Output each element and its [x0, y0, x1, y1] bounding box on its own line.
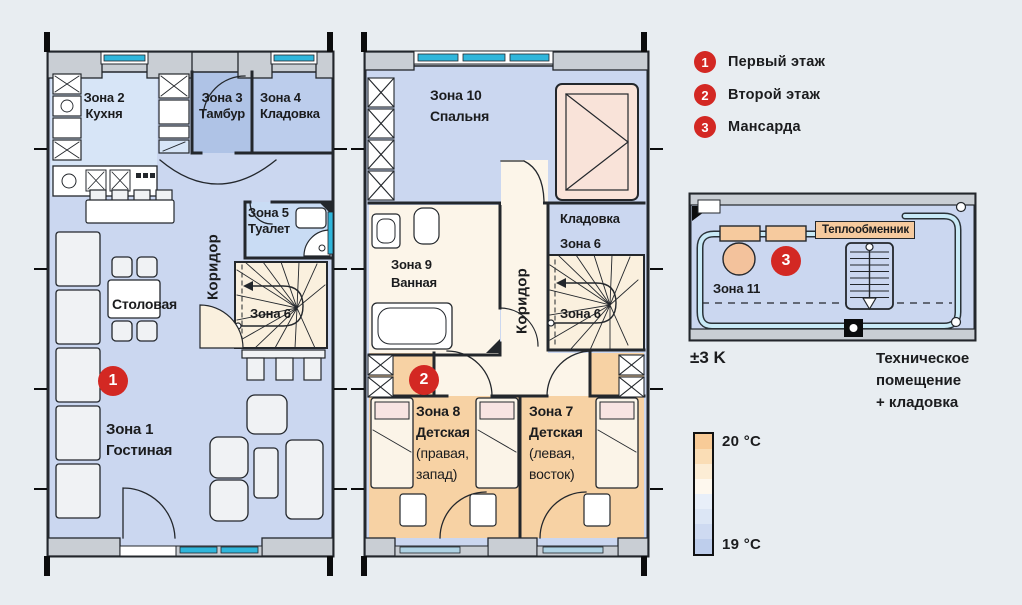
zone7-line2: Детская: [529, 422, 583, 443]
zone7-line1: Зона 7: [529, 401, 583, 422]
zone8-line2: Детская: [416, 422, 470, 443]
scale-band: [695, 494, 712, 509]
pump-dot: [850, 324, 858, 332]
temperature-scale: [693, 432, 714, 556]
scale-band: [695, 479, 712, 494]
heater-element-2: [766, 226, 806, 241]
tech-room-line1: Техническое: [876, 348, 969, 370]
zone5-line2: Туалет: [248, 221, 290, 237]
living-sofa-row: [56, 232, 100, 518]
label-zone2: Зона 2 Кухня: [69, 90, 139, 122]
zone1-line1: Зона 1: [106, 419, 172, 440]
label-storage-floor2: Кладовка Зона 6: [560, 206, 620, 256]
zone7-line3: (левая,: [529, 443, 583, 464]
label-corridor-floor2: Коридор: [514, 268, 531, 334]
zone8-line3: (правая,: [416, 443, 470, 464]
zone4-line1: Зона 4: [260, 90, 320, 106]
bedroom-bed: [556, 84, 638, 200]
label-stairs-floor1: Зона 6: [250, 306, 291, 322]
kitchen-tall-units: [159, 74, 189, 153]
label-zone11: Зона 11: [713, 281, 760, 297]
zone7-line4: восток): [529, 464, 583, 485]
zone5-line1: Зона 5: [248, 205, 290, 221]
floorplan-infographic: 1 Первый этаж 2 Второй этаж 3 Мансарда 1…: [0, 0, 1022, 605]
legend-row-1: 1 Первый этаж: [694, 51, 825, 73]
scale-min-label: 19 °C: [722, 536, 761, 553]
label-dining: Столовая: [112, 294, 177, 315]
label-zone1: Зона 1 Гостиная: [106, 419, 172, 461]
label-zone7: Зона 7 Детская (левая, восток): [529, 401, 583, 485]
floor1-marker: 1: [98, 366, 128, 396]
zone9-line2: Ванная: [391, 274, 437, 292]
zone2-line2: Кухня: [69, 106, 139, 122]
tech-room-line2: помещение: [876, 370, 969, 392]
label-stairs-floor2: Зона 6: [560, 306, 601, 322]
legend-label-3: Мансарда: [728, 119, 801, 135]
label-zone8: Зона 8 Детская (правая, запад): [416, 401, 470, 485]
tech-room-line3: + кладовка: [876, 392, 969, 414]
legend-marker-2: 2: [694, 84, 716, 106]
storage-tank: [723, 243, 755, 275]
zone2-line1: Зона 2: [69, 90, 139, 106]
label-zone9: Зона 9 Ванная: [391, 256, 437, 292]
label-heat-exchanger: Теплообменник: [815, 221, 915, 239]
mansarda-plan: [690, 194, 975, 340]
floor2-plan: [351, 32, 663, 576]
legend-label-2: Второй этаж: [728, 87, 820, 103]
legend-row-3: 3 Мансарда: [694, 116, 801, 138]
zone8-line4: запад): [416, 464, 470, 485]
label-zone5: Зона 5 Туалет: [248, 205, 290, 237]
scale-band: [695, 449, 712, 464]
zone10-line2: Спальня: [430, 106, 489, 127]
zone4-line2: Кладовка: [260, 106, 320, 122]
legend-label-1: Первый этаж: [728, 54, 825, 70]
zone1-line2: Гостиная: [106, 440, 172, 461]
zone3-line2: Тамбур: [187, 106, 257, 122]
zone3-line1: Зона 3: [187, 90, 257, 106]
label-corridor-floor1: Коридор: [205, 234, 222, 300]
legend-row-2: 2 Второй этаж: [694, 84, 820, 106]
mansarda-top-wall: [690, 194, 975, 205]
mansarda-stairs: [846, 243, 893, 309]
scale-max-label: 20 °C: [722, 433, 761, 450]
label-tolerance: ±3 K: [690, 348, 726, 368]
legend-marker-1: 1: [694, 51, 716, 73]
storage-line1: Кладовка: [560, 206, 620, 231]
scale-band: [695, 434, 712, 449]
label-zone4: Зона 4 Кладовка: [260, 90, 320, 122]
zone10-line1: Зона 10: [430, 85, 489, 106]
heater-element-1: [720, 226, 760, 241]
label-zone3: Зона 3 Тамбур: [187, 90, 257, 122]
label-tech-room: Техническое помещение + кладовка: [876, 348, 969, 414]
scale-band: [695, 539, 712, 554]
mansarda-vent: [698, 200, 720, 213]
zone9-line1: Зона 9: [391, 256, 437, 274]
mansarda-marker: 3: [771, 246, 801, 276]
legend-marker-3: 3: [694, 116, 716, 138]
zone8-line1: Зона 8: [416, 401, 470, 422]
label-zone10: Зона 10 Спальня: [430, 85, 489, 127]
bedroom-door: [501, 160, 544, 205]
storage-line2: Зона 6: [560, 231, 620, 256]
scale-band: [695, 524, 712, 539]
mansarda-bottom-wall: [690, 329, 975, 340]
floor2-marker: 2: [409, 365, 439, 395]
scale-band: [695, 464, 712, 479]
scale-band: [695, 509, 712, 524]
